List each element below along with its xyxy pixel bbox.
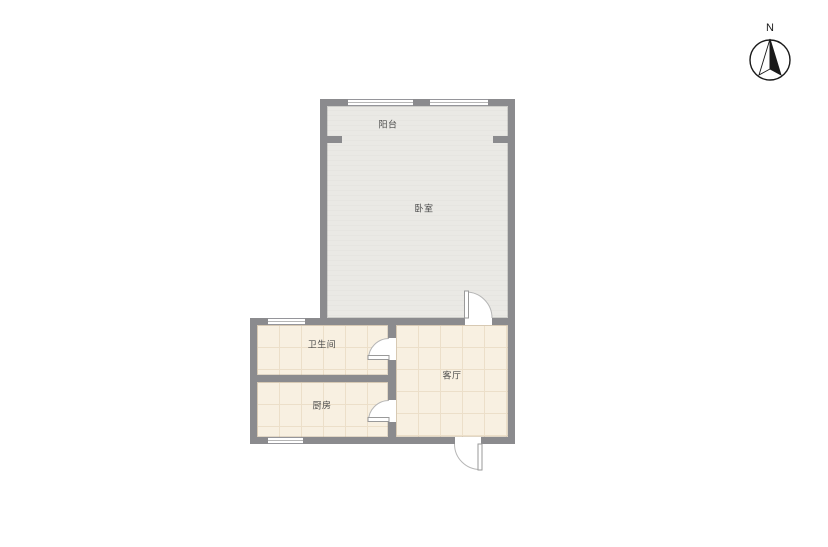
wall-segment	[481, 437, 515, 444]
bedroom-left-wall	[320, 99, 327, 325]
kitchen-window	[268, 437, 303, 444]
entrance-door	[455, 444, 483, 470]
interior-wall-segment	[388, 325, 396, 338]
bathroom-kitchen-wall	[250, 375, 396, 382]
door-opening	[388, 338, 396, 360]
compass-needle-icon	[746, 34, 794, 86]
door-opening	[455, 437, 481, 444]
door-opening	[465, 318, 492, 325]
room-label-living: 客厅	[442, 369, 461, 382]
room-label-bathroom: 卫生间	[308, 338, 337, 351]
balcony-window	[430, 99, 488, 106]
bathroom-window	[268, 318, 305, 325]
door-opening	[388, 400, 396, 422]
wall-segment	[250, 437, 268, 444]
room-label-kitchen: 厨房	[312, 399, 331, 412]
room-label-balcony: 阳台	[378, 118, 397, 131]
balcony-divider-stub	[327, 136, 342, 143]
interior-wall-segment	[388, 422, 396, 437]
balcony-divider-stub	[493, 136, 508, 143]
wall-segment	[492, 318, 515, 325]
wall-segment	[305, 318, 465, 325]
floor-plan-page: N	[0, 0, 828, 547]
balcony-window	[348, 99, 413, 106]
right-outer-wall	[508, 99, 515, 444]
compass: N	[746, 22, 794, 88]
compass-north-label: N	[746, 22, 794, 34]
room-label-bedroom: 卧室	[414, 202, 433, 215]
wall-segment	[413, 99, 430, 106]
wall-segment	[303, 437, 455, 444]
